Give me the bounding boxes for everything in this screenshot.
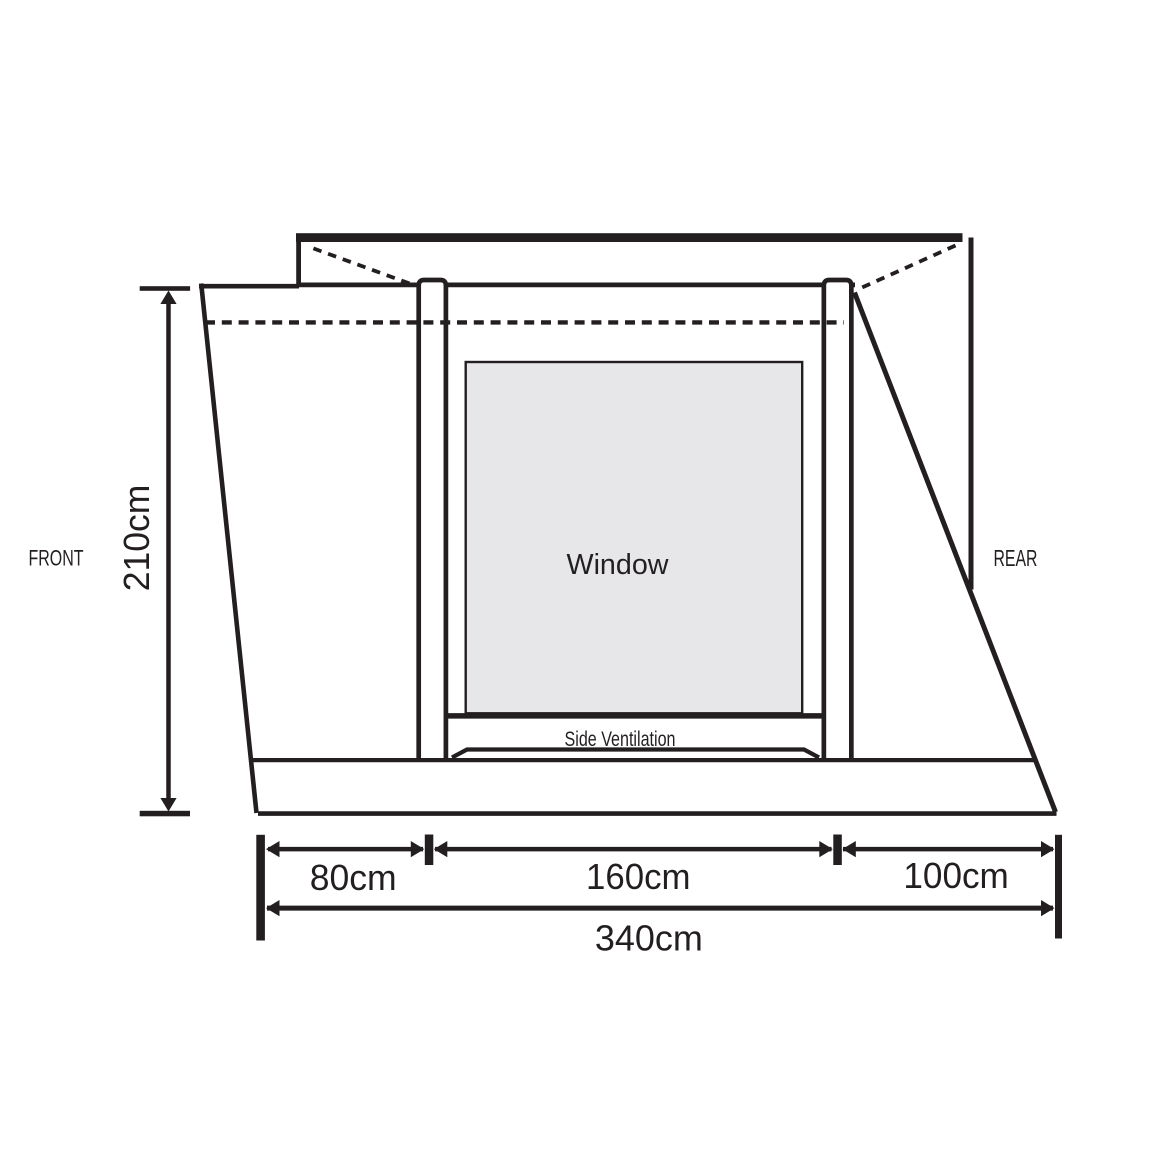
svg-text:REAR: REAR bbox=[994, 545, 1038, 571]
svg-text:FRONT: FRONT bbox=[29, 546, 84, 571]
svg-text:340cm: 340cm bbox=[595, 917, 703, 958]
svg-text:Side Ventilation: Side Ventilation bbox=[565, 728, 676, 751]
svg-text:80cm: 80cm bbox=[310, 857, 397, 898]
svg-text:Window: Window bbox=[567, 549, 670, 581]
svg-text:160cm: 160cm bbox=[586, 856, 691, 897]
svg-text:100cm: 100cm bbox=[903, 855, 1008, 896]
svg-text:210cm: 210cm bbox=[116, 485, 157, 592]
